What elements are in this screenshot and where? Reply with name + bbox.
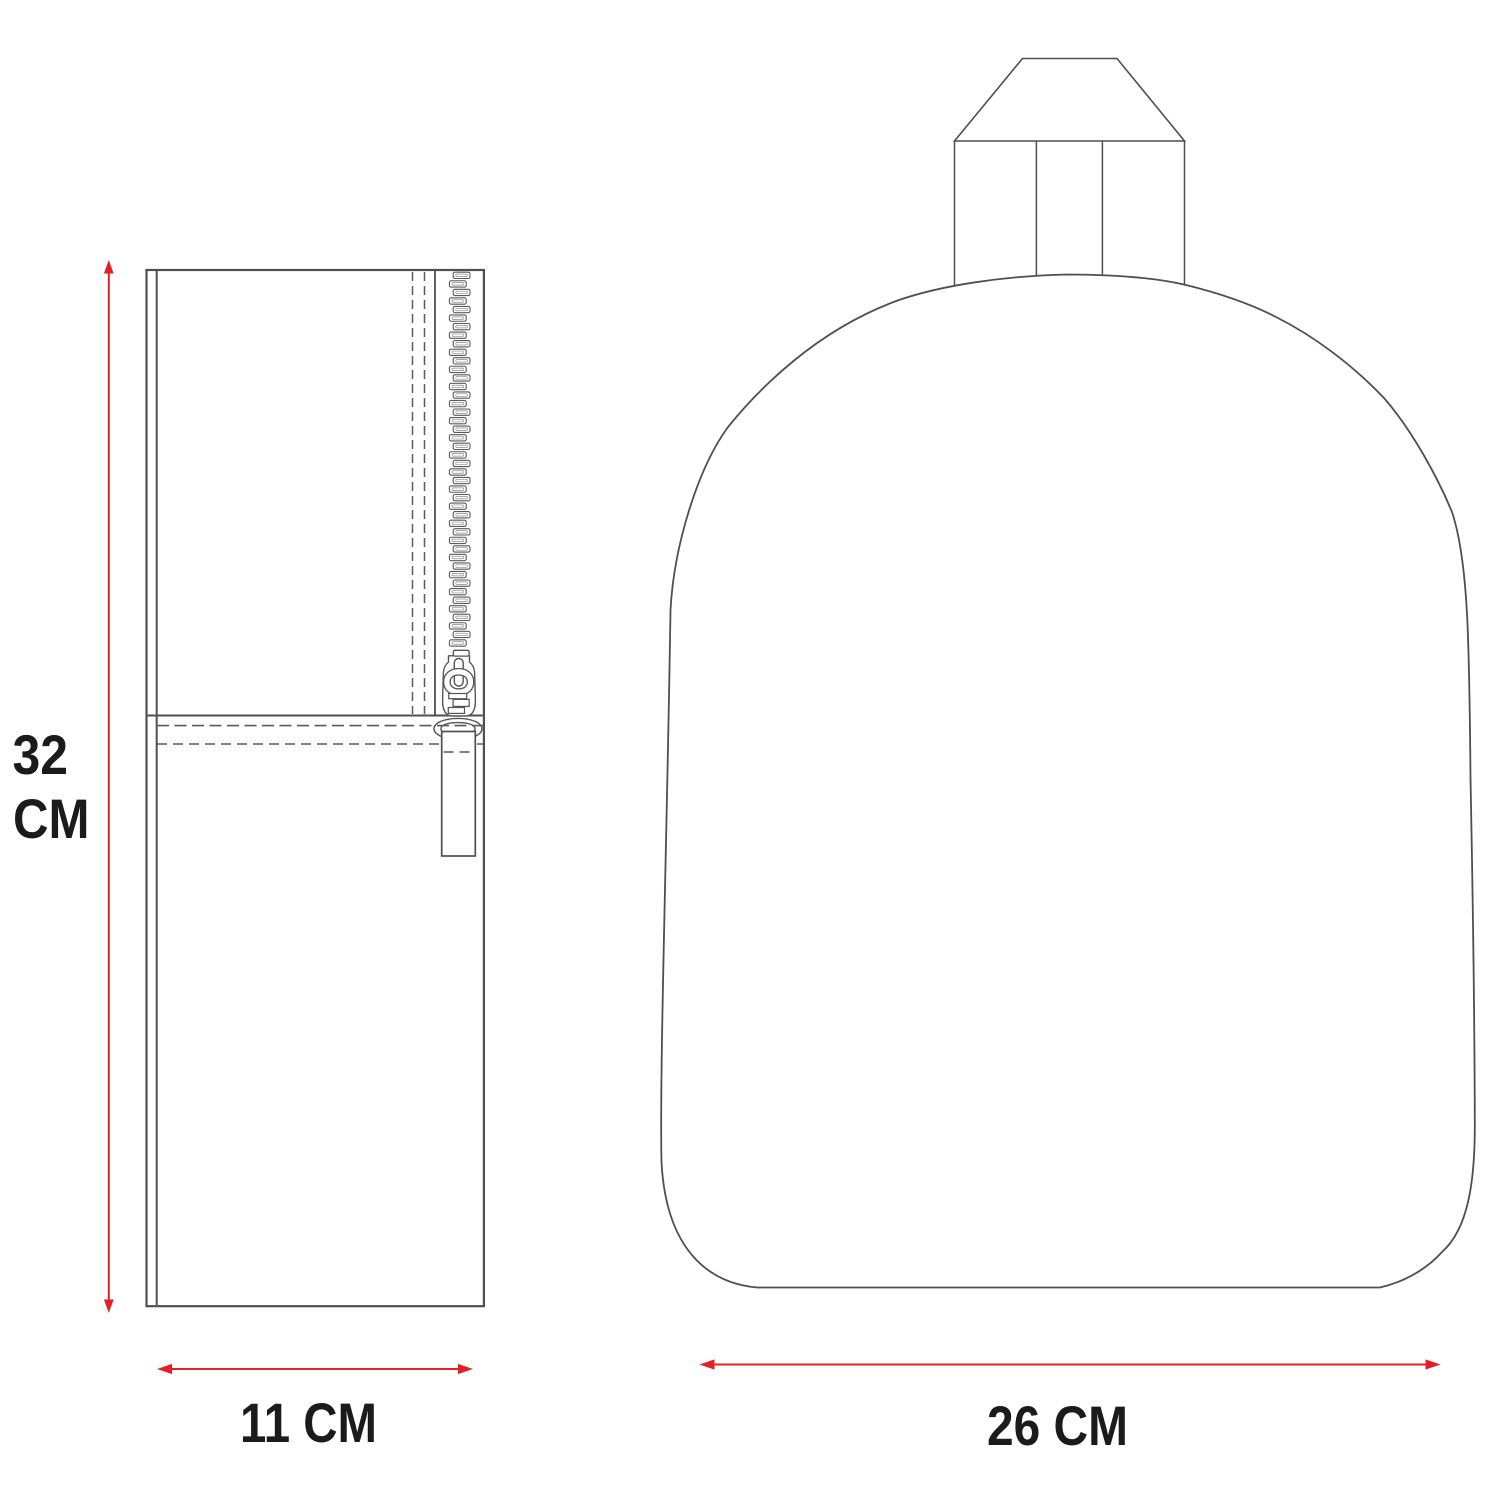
svg-text:CM: CM [13, 787, 90, 850]
svg-text:11 CM: 11 CM [240, 1391, 377, 1454]
svg-text:32: 32 [13, 723, 69, 786]
svg-text:26 CM: 26 CM [987, 1394, 1128, 1457]
